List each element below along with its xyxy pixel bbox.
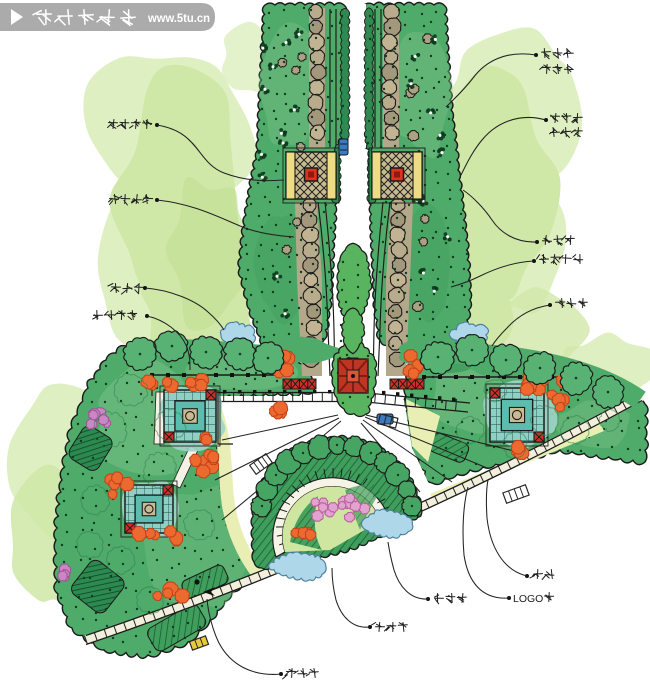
svg-text:LOGO: LOGO [513, 593, 543, 605]
svg-text:www.5tu.cn: www.5tu.cn [147, 11, 210, 25]
